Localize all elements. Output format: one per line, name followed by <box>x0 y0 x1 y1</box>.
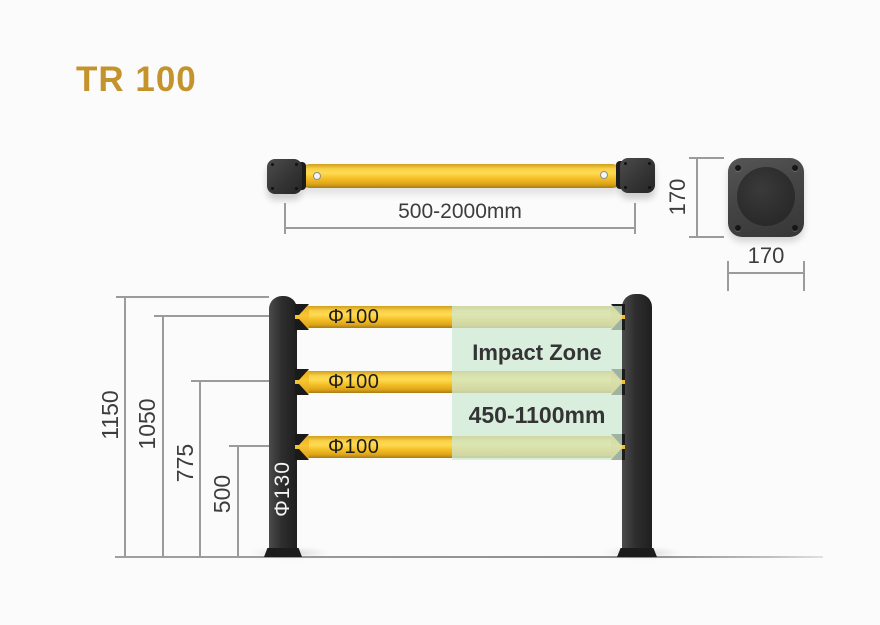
dimension-tick <box>191 380 269 382</box>
dimension-tick <box>154 315 269 317</box>
ground-line <box>115 556 823 558</box>
dimension-tick <box>116 296 269 298</box>
left-end-cap <box>267 159 302 194</box>
dimension-line-500 <box>237 446 239 557</box>
rail-connector-icon <box>295 304 309 330</box>
screw-hole <box>295 163 298 166</box>
dimension-label-1150: 1150 <box>97 365 123 465</box>
product-dimension-diagram: TR 100 500-2000mm <box>0 0 880 625</box>
bolt-hole <box>735 225 741 231</box>
screw-hole <box>624 162 627 165</box>
right-end-cap <box>620 158 655 193</box>
right-post-foot <box>617 548 657 557</box>
rivet <box>313 172 321 180</box>
dimension-tick <box>689 236 724 238</box>
dimension-line <box>284 227 636 229</box>
left-post-foot <box>264 548 302 557</box>
rivet <box>600 171 608 179</box>
product-title: TR 100 <box>76 60 197 100</box>
dimension-tick <box>689 157 724 159</box>
plate-width-dimension: 170 <box>716 243 816 269</box>
dimension-line-1150 <box>124 297 126 557</box>
rail-connector-icon <box>295 369 309 395</box>
bolt-hole <box>735 165 741 171</box>
screw-hole <box>648 186 651 189</box>
impact-zone-label: Impact Zone <box>452 340 622 366</box>
screw-hole <box>271 187 274 190</box>
dimension-tick <box>229 445 269 447</box>
plate-height-dimension: 170 <box>665 147 691 247</box>
screw-hole <box>648 162 651 165</box>
bolt-hole <box>792 225 798 231</box>
dimension-line <box>727 272 805 274</box>
screw-hole <box>295 187 298 190</box>
dimension-label-1050: 1050 <box>134 374 160 474</box>
post-socket-circle <box>737 167 795 226</box>
rail-diameter-label: Φ100 <box>328 371 379 393</box>
post-diameter-label: Φ130 <box>270 439 296 539</box>
rail-tube-top-view <box>298 164 624 188</box>
rail-length-dimension: 500-2000mm <box>360 200 560 224</box>
screw-hole <box>624 186 627 189</box>
right-post <box>622 294 652 557</box>
bolt-hole <box>792 165 798 171</box>
screw-hole <box>271 163 274 166</box>
rail-diameter-label: Φ100 <box>328 436 379 458</box>
dimension-line-775 <box>199 381 201 557</box>
dimension-line-1050 <box>162 316 164 557</box>
impact-zone-range: 450-1100mm <box>448 402 626 429</box>
dimension-line <box>696 158 698 237</box>
dimension-label-500: 500 <box>209 444 235 544</box>
rail-diameter-label: Φ100 <box>328 306 379 328</box>
dimension-label-775: 775 <box>172 413 198 513</box>
dimension-tick <box>634 203 636 234</box>
dimension-tick <box>284 203 286 234</box>
rail-connector-icon <box>295 434 309 460</box>
impact-zone-overlay <box>452 306 622 460</box>
